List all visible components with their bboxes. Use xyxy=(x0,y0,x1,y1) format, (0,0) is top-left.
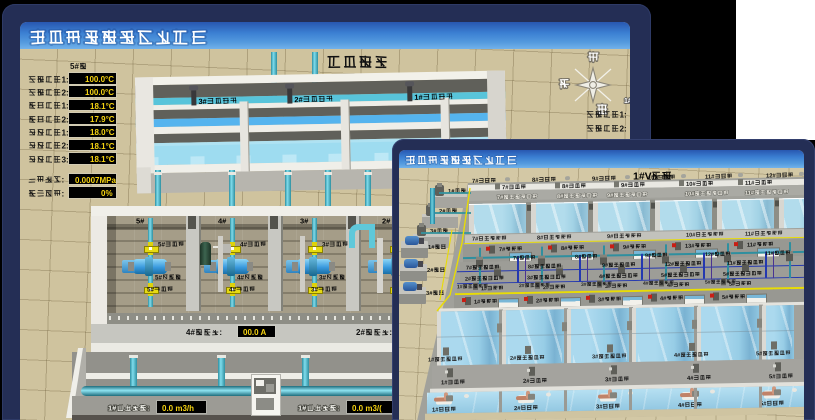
svg-text:00.0 A: 00.0 A xyxy=(243,328,266,337)
svg-text:2#: 2# xyxy=(519,283,525,289)
svg-text:12#: 12# xyxy=(665,261,674,267)
svg-text:10#: 10# xyxy=(686,233,696,239)
svg-text:11#: 11# xyxy=(747,242,757,248)
svg-text:5#: 5# xyxy=(723,271,729,277)
svg-text:11#: 11# xyxy=(745,231,755,237)
svg-text::: : xyxy=(62,189,65,198)
svg-text:1:: 1: xyxy=(62,75,69,84)
svg-text:11#: 11# xyxy=(727,260,736,266)
svg-text:8#: 8# xyxy=(557,193,564,199)
svg-text:3:: 3: xyxy=(62,155,69,164)
svg-text:4#: 4# xyxy=(599,274,605,280)
svg-text::: : xyxy=(147,403,150,412)
svg-text:8#: 8# xyxy=(537,235,544,241)
svg-text:5#: 5# xyxy=(136,217,145,226)
svg-text:5#: 5# xyxy=(756,351,763,357)
svg-text:3#: 3# xyxy=(300,217,309,226)
svg-text:7#: 7# xyxy=(499,247,506,253)
svg-text:18.1°C: 18.1°C xyxy=(90,142,115,151)
svg-text:13#: 13# xyxy=(685,244,695,250)
svg-text:9#: 9# xyxy=(602,263,608,269)
svg-text:4#: 4# xyxy=(240,241,248,248)
svg-text:7#: 7# xyxy=(497,195,504,201)
svg-text::: : xyxy=(337,403,340,412)
svg-text:1#: 1# xyxy=(108,403,117,412)
svg-text:4#: 4# xyxy=(229,286,237,293)
svg-text:11#: 11# xyxy=(765,251,774,257)
svg-text:0.0007MPa: 0.0007MPa xyxy=(75,176,116,185)
svg-text:4#: 4# xyxy=(643,281,649,287)
svg-text::: : xyxy=(62,176,65,185)
svg-text:1#: 1# xyxy=(298,403,307,412)
svg-text:5#: 5# xyxy=(155,274,163,281)
svg-text:9#: 9# xyxy=(607,193,614,199)
svg-text:1:: 1: xyxy=(620,110,627,119)
svg-text:2#: 2# xyxy=(536,298,543,304)
svg-text:3#: 3# xyxy=(319,274,327,281)
svg-text:0.0 m3/(: 0.0 m3/( xyxy=(352,404,382,413)
svg-text:2#: 2# xyxy=(294,95,303,104)
svg-text:12#: 12# xyxy=(705,252,714,258)
svg-text:100.0°C: 100.0°C xyxy=(85,88,114,97)
svg-text:4#: 4# xyxy=(218,217,227,226)
svg-text:8#: 8# xyxy=(575,254,581,260)
svg-text:2#: 2# xyxy=(523,378,530,384)
svg-text:5#: 5# xyxy=(147,286,155,293)
svg-text:3#: 3# xyxy=(322,241,330,248)
svg-text:4#: 4# xyxy=(237,274,245,281)
svg-text:4#: 4# xyxy=(674,353,681,359)
svg-text:4#: 4# xyxy=(186,328,195,337)
svg-text:3#: 3# xyxy=(581,282,587,288)
svg-text:2#: 2# xyxy=(382,217,391,226)
svg-text:11#: 11# xyxy=(745,190,755,196)
svg-text:1:: 1: xyxy=(62,128,69,137)
svg-text:3#: 3# xyxy=(598,297,605,303)
svg-text:5#: 5# xyxy=(769,374,776,380)
svg-text:3#: 3# xyxy=(592,354,599,360)
svg-text:0.0 m3/h: 0.0 m3/h xyxy=(162,404,194,413)
svg-text:1#: 1# xyxy=(414,93,423,102)
svg-text:18.0°C: 18.0°C xyxy=(90,128,115,137)
svg-text:3#: 3# xyxy=(198,97,207,106)
svg-text:9#: 9# xyxy=(607,234,614,240)
svg-text:3#: 3# xyxy=(311,286,319,293)
svg-text:5#: 5# xyxy=(70,62,79,71)
svg-text:5#: 5# xyxy=(158,241,166,248)
svg-text:2:: 2: xyxy=(620,124,627,133)
svg-text:4#: 4# xyxy=(660,296,667,302)
svg-text:5#: 5# xyxy=(722,294,729,300)
svg-text:18.1°C: 18.1°C xyxy=(90,155,115,164)
svg-text:1:: 1: xyxy=(62,102,69,111)
svg-text:2#: 2# xyxy=(356,328,365,337)
svg-text:5#: 5# xyxy=(661,272,667,278)
svg-text:8#: 8# xyxy=(528,264,534,270)
svg-text:100.0°C: 100.0°C xyxy=(85,75,114,84)
svg-text:2:: 2: xyxy=(62,115,69,124)
svg-text:7#: 7# xyxy=(513,255,519,261)
svg-text:9#: 9# xyxy=(623,245,630,251)
svg-text::: : xyxy=(219,328,222,337)
svg-text:3#: 3# xyxy=(527,275,533,281)
svg-text:3#: 3# xyxy=(605,377,612,383)
svg-text:18.1°C: 18.1°C xyxy=(90,102,115,111)
svg-text:2#: 2# xyxy=(510,356,517,362)
svg-text:2:: 2: xyxy=(62,142,69,151)
svg-text:2:: 2: xyxy=(62,88,69,97)
svg-text:4#: 4# xyxy=(687,375,694,381)
svg-text:17.9°C: 17.9°C xyxy=(90,115,115,124)
svg-text:1#: 1# xyxy=(624,98,630,105)
svg-text:8#: 8# xyxy=(561,246,568,252)
svg-text:9#: 9# xyxy=(645,253,651,259)
svg-text:0%: 0% xyxy=(101,189,113,198)
svg-text:10#: 10# xyxy=(685,191,695,197)
svg-text:5#: 5# xyxy=(705,280,711,286)
